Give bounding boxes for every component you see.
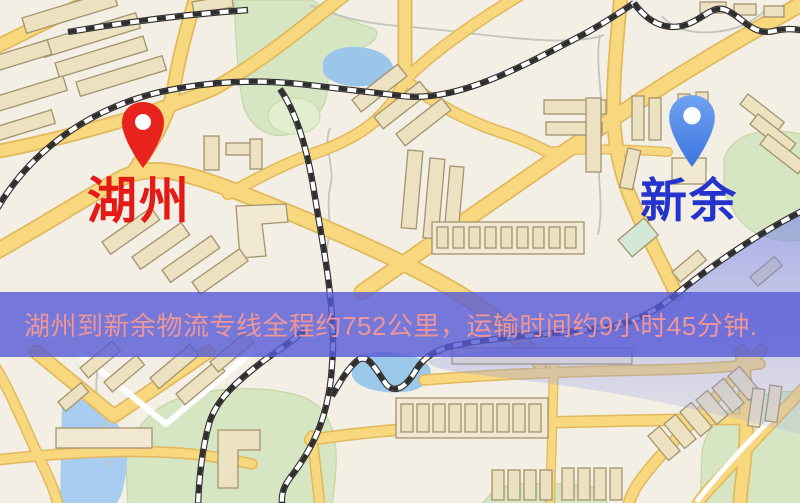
- info-banner: 湖州到新余物流专线全程约752公里，运输时间约9小时45分钟.: [0, 292, 800, 357]
- origin-pin-hole: [135, 114, 151, 130]
- destination-pin-shape: [669, 95, 715, 167]
- destination-pin-icon: [668, 94, 716, 168]
- origin-label: 湖州: [84, 176, 194, 226]
- destination-pin-hole: [683, 107, 700, 124]
- map-image: 湖州 新余 湖州到新余物流专线全程约752公里，运输时间约9小时45分钟.: [0, 0, 800, 503]
- destination-label: 新余: [634, 179, 744, 226]
- origin-pin-shape: [122, 102, 164, 168]
- route-info-text: 湖州到新余物流专线全程约752公里，运输时间约9小时45分钟.: [0, 306, 757, 343]
- map-surface: [0, 0, 800, 503]
- origin-pin-icon: [121, 101, 165, 169]
